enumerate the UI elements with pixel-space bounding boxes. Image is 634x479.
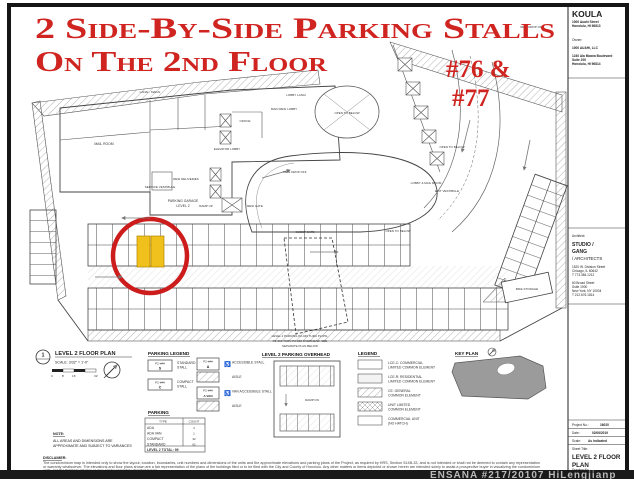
- headline-line-2: On The 2nd Floor: [35, 46, 328, 78]
- label-guest-gate: GUEST GATE: [295, 230, 314, 234]
- ada-aisle-label: AISLE: [232, 375, 242, 379]
- headline-line-1: 2 Side-By-Side Parking Stalls: [35, 12, 555, 45]
- project-name: KOULA: [572, 9, 602, 19]
- col-type: TYPE: [159, 420, 167, 424]
- date-value: 02/06/2019: [592, 431, 608, 435]
- highlight-stall-77: [151, 236, 164, 267]
- owner-address-3: Honolulu, HI 96814: [572, 62, 601, 66]
- row-adavan-type: ADA VAN: [147, 431, 162, 435]
- note-line-2: APPROXIMATE AND SUBJECT TO VARIANCES: [53, 444, 132, 448]
- architect-name-3: / ARCHITECTS: [572, 256, 602, 261]
- row-ada-type: ADA: [147, 426, 155, 430]
- overhead-mini-plan: LEVEL 2 PARKING OVERHEAD RAMP DN: [262, 352, 340, 437]
- van-stall-tag: P2-###: [203, 389, 213, 393]
- disclaimer-heading: DISCLAIMER:: [43, 456, 67, 460]
- drawing-title: LEVEL 2 FLOOR PLAN: [55, 351, 116, 357]
- row-compact-type: COMPACT: [147, 437, 164, 441]
- overhead-note-2: P2-061 THRU P2-068 OVERHEAD. SEE: [273, 339, 328, 343]
- legend-2-l1: CE: GENERAL: [388, 389, 411, 393]
- date-label: Date:: [572, 431, 580, 435]
- architect-name-1: STUDIO /: [572, 242, 594, 248]
- van-stall-label: VAN ACCESSIBLE STALL: [232, 390, 272, 394]
- legend-0-l1: LCE-C: COMMERCIAL: [388, 361, 423, 365]
- label-office: OFFICE: [240, 119, 251, 123]
- legend-4-l1: COMMERCIAL UNIT: [388, 417, 420, 421]
- table-total: LEVEL 2 TOTAL: 99: [147, 448, 179, 452]
- legend-1-l2: LIMITED COMMON ELEMENT: [388, 380, 435, 384]
- ada-stall-label: ACCESSIBLE STALL: [232, 361, 264, 365]
- owner-name: 1000 AUAHI, LLC: [572, 46, 599, 50]
- label-parking-garage-2: LEVEL 2: [176, 204, 189, 208]
- parking-legend-heading: PARKING LEGEND: [148, 351, 190, 356]
- std-stall-label-2: STALL: [177, 366, 187, 370]
- sheet-title-1: LEVEL 2 FLOOR: [572, 454, 621, 461]
- col-count: COUNT: [189, 420, 200, 424]
- project-no-label: Project No.:: [572, 423, 589, 427]
- architect-chicago-3: T 773.384.1212: [572, 273, 595, 277]
- project-no-value: 16020: [600, 423, 609, 427]
- key-plan-heading: KEY PLAN: [455, 351, 479, 356]
- highlight-stall-76: [137, 236, 150, 267]
- label-lobby-mail-room: LOBBY & MAIL ROOM: [411, 181, 442, 185]
- wheelchair-icon-van: ♿: [224, 390, 231, 397]
- sheet-drawing: LANAI - MAKAI LOBBY LANAI OPEN TO BELOW …: [0, 0, 634, 479]
- architect-label: Architect:: [572, 234, 585, 238]
- sheet-title-label: Sheet Title:: [572, 447, 588, 451]
- label-elevator-lobby: ELEVATOR LOBBY: [214, 147, 240, 151]
- scale-tick-3: 32': [94, 374, 98, 378]
- ada-stall-tag: P2-###: [203, 360, 213, 364]
- overhead-note-1: LEVEL 2 PARKING P2-049 THRU P2-051,: [272, 334, 329, 338]
- row-standard-count: 62: [192, 442, 196, 446]
- scale-value: As Indicated: [588, 439, 607, 443]
- key-plan-site-shape: [452, 356, 546, 399]
- ada-stall-code: A: [207, 365, 210, 369]
- condo-map-sheet: LANAI - MAKAI LOBBY LANAI OPEN TO BELOW …: [0, 0, 634, 479]
- label-resi-deliveries: RESI DELIVERIES: [173, 177, 199, 181]
- row-compact-count: 32: [192, 437, 196, 441]
- legend-heading: LEGEND: [358, 351, 378, 356]
- label-exit-vestibule: EXIT VESTIBULE: [435, 189, 459, 193]
- label-resi-gate: RESI GATE: [247, 204, 263, 208]
- label-main-resi-lobby: MAIN RESI LOBBY: [271, 107, 297, 111]
- label-open-below-oval: OPEN TO BELOW: [334, 111, 359, 115]
- scale-tick-2: 16': [72, 374, 76, 378]
- compact-stall-tag: P2-###: [155, 381, 165, 385]
- compact-stall-label-1: COMPACT: [177, 380, 194, 384]
- label-open-below-loop: OPEN TO BELOW: [385, 229, 410, 233]
- legend-4-l2: (NO HATCH): [388, 422, 408, 426]
- architect-name-2: GANG: [572, 249, 587, 255]
- ramp-up-box: [222, 198, 242, 212]
- label-bike-storage: BIKE STORAGE: [516, 287, 538, 291]
- ramp-dn-label: RAMP DN: [305, 398, 319, 402]
- van-aisle-label: AISLE: [232, 404, 242, 408]
- drawing-number: 1: [42, 353, 45, 359]
- scale-label: Scale:: [572, 439, 581, 443]
- stall-callout-1: #76 &: [446, 56, 511, 83]
- architect-ny-4: T 212.676.1814: [572, 293, 595, 297]
- compact-stall-label-2: STALL: [177, 385, 187, 389]
- note-line-1: ALL AREAS AND DIMENSIONS ARE: [53, 439, 113, 443]
- label-parking-garage-1: PARKING GARAGE: [168, 199, 199, 203]
- legend-1-l1: LCE-R: RESIDENTIAL: [388, 375, 422, 379]
- std-stall-label-1: STANDARD: [177, 361, 196, 365]
- overhead-heading: LEVEL 2 PARKING OVERHEAD: [262, 352, 331, 357]
- label-mail-room: MAIL ROOM: [94, 142, 113, 146]
- label-resi-drop-off: RESI DROP OFF: [283, 170, 306, 174]
- label-lanai-makai: LANAI - MAKAI: [140, 90, 161, 94]
- label-lobby-lanai: LOBBY LANAI: [286, 93, 306, 97]
- wheelchair-icon: ♿: [224, 361, 231, 368]
- legend-3-l1: UNIT LIMITED: [388, 403, 411, 407]
- watermark: ENSANA #217/20107 HiLengjianp: [430, 470, 616, 479]
- legend-0-l2: LIMITED COMMON ELEMENT: [388, 366, 435, 370]
- stall-callout-2: #77: [452, 85, 490, 112]
- legend-2-l2: COMMON ELEMENT: [388, 394, 421, 398]
- label-ramp-up: RAMP UP: [199, 204, 213, 208]
- row-standard-type: STANDARD: [147, 442, 166, 446]
- parking-table-heading: PARKING: [148, 410, 169, 415]
- drawing-scale: SCALE: 3/32" = 1'-0": [55, 361, 89, 365]
- label-service-vestibule: SERVICE VESTIBULE: [145, 185, 175, 189]
- std-stall-tag: P2-###: [155, 362, 165, 366]
- note-heading: NOTE:: [53, 432, 64, 436]
- legend-3-l2: COMMON ELEMENT: [388, 408, 421, 412]
- label-open-below-right: OPEN TO BELOW: [439, 145, 464, 149]
- project-address-2: Honolulu, HI 96813: [572, 24, 601, 28]
- van-stall-code: A VAN: [204, 394, 213, 398]
- compact-stall-code: C: [159, 386, 162, 390]
- owner-label: Owner:: [572, 38, 582, 42]
- overhead-note-3: SEPARATE PLAN BELOW: [282, 344, 318, 348]
